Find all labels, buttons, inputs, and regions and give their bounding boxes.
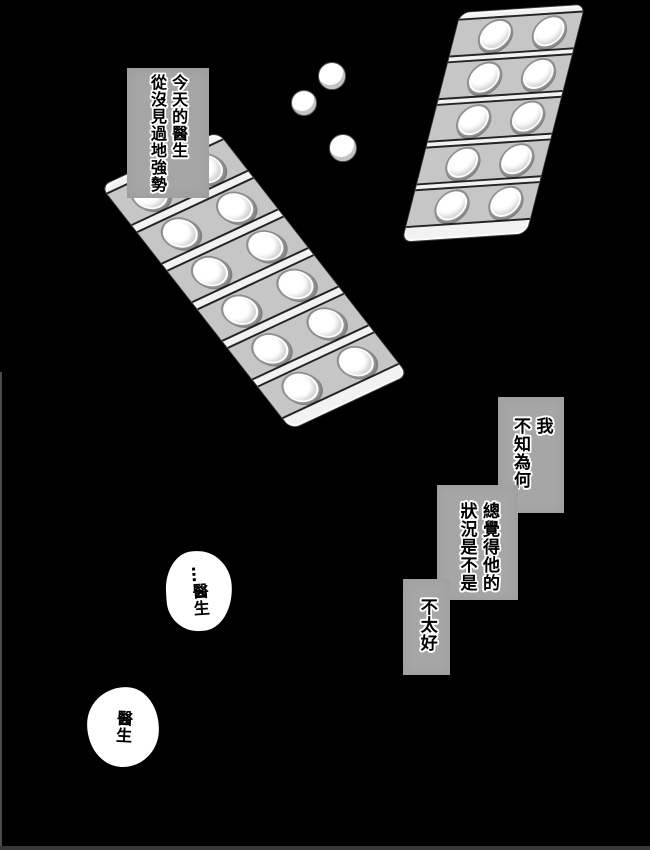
blister-band [417, 138, 551, 185]
blister-pill [452, 103, 494, 138]
blister-pill [274, 366, 329, 410]
blister-band [449, 11, 583, 58]
manga-page: 今天的醫生 從沒見過地強勢 我 不知為何 總覺得他的 狀況是不是 不太好 …醫生… [0, 0, 650, 850]
blister-pill [474, 18, 516, 53]
narration-text: 今天的醫生 從沒見過地強勢 [147, 74, 189, 193]
speech-bubble-2: 醫生 [85, 685, 161, 769]
blister-pill [431, 188, 473, 223]
blister-pill [244, 327, 299, 371]
loose-pill-3 [329, 134, 357, 162]
blister-pill [329, 340, 384, 384]
blister-pill [299, 302, 354, 346]
scan-edge-left [0, 372, 2, 850]
blister-pill [183, 250, 238, 294]
blister-pill [269, 263, 324, 307]
thought-text-3: 不太好 [415, 598, 437, 675]
blister-pill [463, 60, 505, 95]
blister-pill [208, 186, 263, 230]
blister-pill [238, 224, 293, 268]
loose-pill-2 [291, 90, 317, 116]
loose-pill-1 [318, 62, 346, 90]
blister-pill [517, 57, 559, 92]
blister-pill [485, 185, 527, 220]
blister-pill [213, 289, 268, 333]
blister-band [406, 181, 540, 228]
speech-text-2: 醫生 [112, 709, 135, 744]
blister-pill [506, 100, 548, 135]
thought-step-3: 不太好 [403, 579, 450, 675]
thought-text-2: 總覺得他的 狀況是不是 [455, 502, 500, 600]
scan-edge-bottom [0, 846, 650, 850]
speech-bubble-1: …醫生 [163, 549, 234, 633]
blister-pill [153, 212, 208, 256]
blister-band [428, 96, 562, 143]
blister-pack-top-right [401, 4, 586, 243]
blister-pill [495, 142, 537, 177]
narration-box: 今天的醫生 從沒見過地強勢 [127, 68, 209, 198]
blister-pill [528, 14, 570, 49]
blister-pill [441, 146, 483, 181]
speech-text-1: …醫生 [187, 565, 212, 617]
blister-band [439, 53, 573, 100]
